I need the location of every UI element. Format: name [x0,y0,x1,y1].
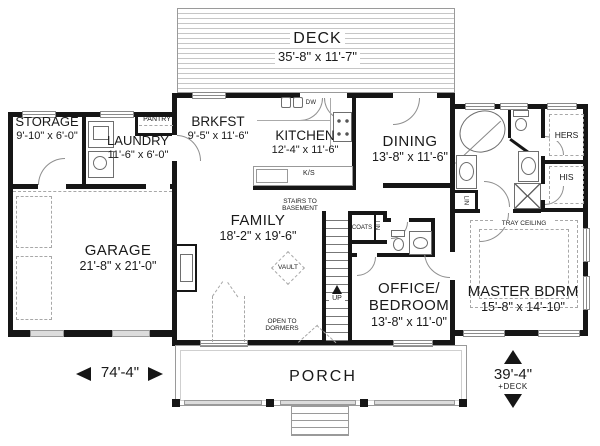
porch-railing [374,400,455,405]
wall [383,183,450,188]
stairs [326,213,348,343]
wall [508,108,511,138]
sink [521,157,536,175]
kitchen-sink-label: K/S [298,170,320,178]
stairs-note: STAIRS TO BASEMENT [272,198,328,212]
coats-label: COATS [350,225,374,232]
door-opening [146,184,170,189]
office-dims: 13'-8" x 11'-0" [362,315,456,329]
toilet-tank [391,230,405,237]
dishwasher-label: DW [303,100,319,107]
stairs-note-line1: STAIRS TO [272,198,328,205]
bathtub [453,103,513,160]
door-opening [450,252,455,280]
dormer-peak [227,282,238,297]
window [465,103,495,110]
brkfst-dims: 9'-5" x 11'-6" [181,130,255,143]
lin-hall-label: LIN [373,217,380,233]
overall-width: 74'-4" [93,364,147,381]
kitchen-label: KITCHEN 12'-4" x 11'-6" [262,128,348,156]
dormer-note: OPEN TO DORMERS [252,318,312,332]
kitchen-name: KITCHEN [262,128,348,144]
dimension-arrow-down [504,394,522,408]
window [500,103,528,110]
master-dims: 15'-8" x 14'-10" [460,300,586,314]
porch-steps [291,406,349,436]
door-arc [38,158,65,185]
dimension-arrow-up [504,350,522,364]
family-name: FAMILY [207,212,309,229]
vault-label: VAULT [266,264,310,271]
window [583,228,590,262]
pantry-shelf [139,125,173,126]
laundry-dims: 11'-6" x 6'-0" [103,149,173,162]
dining-dims: 13'-8" x 11'-6" [363,150,457,164]
office-name-line2: BEDROOM [362,297,456,314]
toilet-bowl [393,238,404,251]
garage-door [112,330,150,337]
up-label: UP [329,295,345,303]
wall [455,209,480,213]
wall [352,240,387,244]
deck-name: DECK [290,30,344,48]
dormer-note-line2: DORMERS [252,325,312,332]
tray-ceiling-label: TRAY CEILING [493,220,555,227]
garage-dims: 21'-8" x 21'-0" [62,259,174,273]
wall [541,208,588,212]
master-name: MASTER BDRM [460,283,586,300]
floor-plan: DECK 35'-8" x 11'-7" [0,0,600,446]
pantry-label: PANTRY [138,116,176,124]
deck-dims: 35'-8" x 11'-7" [275,50,360,65]
wall [82,112,86,189]
kitchen-sink-bowl [293,97,303,108]
wall [172,93,177,346]
brkfst-label: BRKFST 9'-5" x 11'-6" [181,114,255,142]
kitchen-dims: 12'-4" x 11'-6" [262,144,348,157]
overall-depth-note: +DECK [489,382,537,391]
window [547,103,577,110]
master-label: MASTER BDRM 15'-8" x 14'-10" [460,283,586,315]
toilet-bowl [515,118,527,131]
counter-edge [257,120,331,121]
porch-post [172,399,180,407]
wall [8,112,13,337]
garage-ceiling-line [13,191,172,192]
sink [413,237,428,249]
garage-storage-outline [16,196,52,248]
laundry-label: LAUNDRY 11'-6" x 6'-0" [103,134,173,162]
laundry-name: LAUNDRY [103,134,173,149]
office-name-line1: OFFICE/ [362,280,456,297]
porch-post [459,399,467,407]
hers-label: HERS [550,131,583,141]
wall [352,211,387,215]
island-cabinet [256,169,288,183]
up-arrow-icon [332,285,342,294]
window [538,330,580,337]
dining-name: DINING [363,133,457,150]
porch-post [266,399,274,407]
sink [459,162,474,181]
overall-depth: 39'-4" [489,366,537,383]
door-arc [484,181,510,207]
dimension-arrow-left [76,367,91,381]
porch-post [360,399,368,407]
door-arc [357,257,376,276]
porch-railing [280,400,356,405]
deck-label: DECK 35'-8" x 11'-7" [250,30,385,67]
window [463,330,505,337]
storage-label: STORAGE 9'-10" x 6'-0" [12,115,82,143]
porch-railing [184,400,262,405]
garage-door [30,330,64,337]
door-arc [393,98,420,125]
dormer-outline [244,296,245,342]
wall [545,160,588,164]
his-label: HIS [552,173,581,183]
kitchen-sink-bowl [281,97,291,108]
dormer-peak [212,281,223,296]
toilet-tank [513,110,529,117]
garage-label: GARAGE 21'-8" x 21'-0" [62,242,174,274]
family-dims: 18'-2" x 19'-6" [207,229,309,243]
office-label: OFFICE/ BEDROOM 13'-8" x 11'-0" [362,280,456,329]
window [100,111,134,118]
dining-label: DINING 13'-8" x 11'-6" [363,133,457,165]
window [192,92,226,99]
family-label: FAMILY 18'-2" x 19'-6" [207,212,309,244]
brkfst-name: BRKFST [181,114,255,130]
storage-dims: 9'-10" x 6'-0" [12,130,82,143]
storage-name: STORAGE [12,115,82,130]
wall [541,108,545,138]
shower [514,183,541,209]
lin-bath-label: LIN [462,192,469,208]
dimension-arrow-right [148,367,163,381]
dormer-note-line1: OPEN TO [252,318,312,325]
porch-label: PORCH [278,368,368,386]
door-arc [424,252,450,278]
garage-name: GARAGE [62,242,174,259]
dormer-outline [212,296,213,342]
fireplace-firebox [180,254,193,282]
garage-storage-outline [16,256,52,320]
wall [513,209,541,213]
